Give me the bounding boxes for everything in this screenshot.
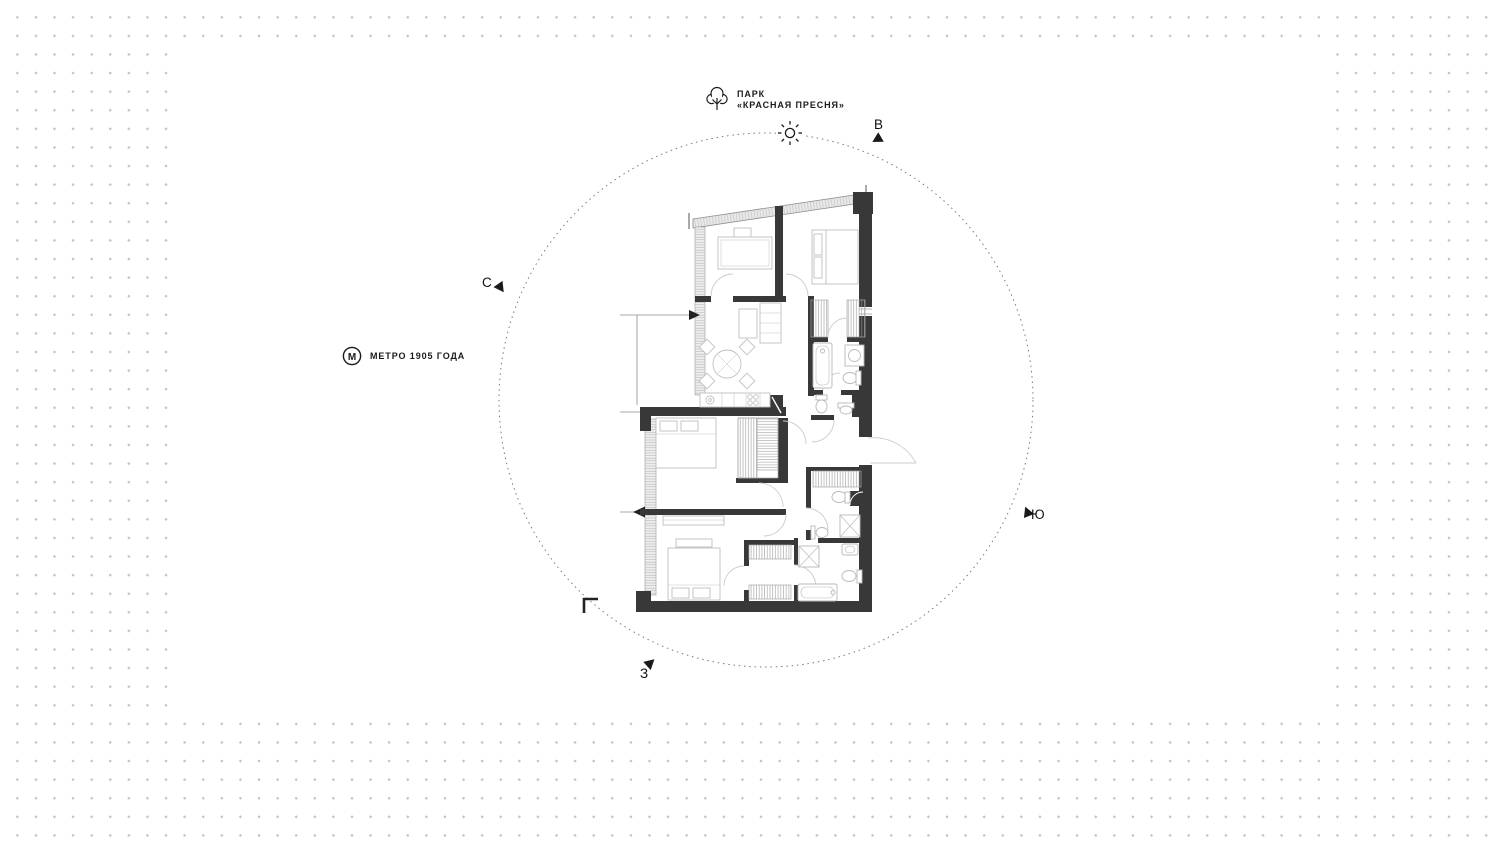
sun-icon [776, 119, 804, 147]
compass-south-label: Ю [1031, 507, 1045, 522]
compass-west-label: З [640, 666, 648, 681]
north-arrow-icon [493, 281, 508, 296]
park-label-line2: «КРАСНАЯ ПРЕСНЯ» [737, 100, 845, 111]
compass-east-label: В [874, 117, 883, 132]
compass-north-label: С [482, 275, 492, 290]
site-plan-svg: М [0, 0, 1500, 842]
east-arrow-icon [870, 132, 884, 147]
park-label: ПАРК «КРАСНАЯ ПРЕСНЯ» [737, 89, 845, 111]
floor-plan [620, 185, 916, 612]
tree-icon [707, 88, 727, 111]
metro-label: МЕТРО 1905 ГОДА [370, 351, 465, 362]
metro-icon: М [343, 347, 360, 364]
metro-icon-letter: М [348, 352, 356, 363]
park-label-line1: ПАРК [737, 89, 845, 100]
site-plan-page: М [0, 0, 1500, 842]
